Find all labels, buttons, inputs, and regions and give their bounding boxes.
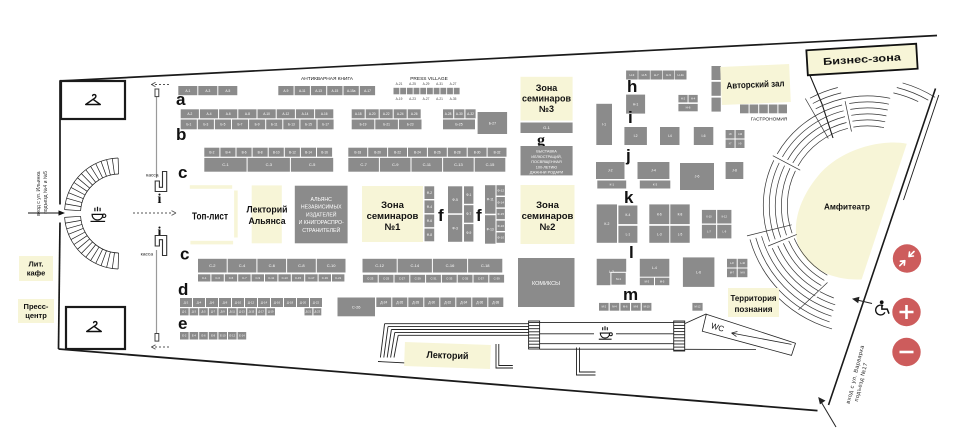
svg-text:Ф-14: Ф-14 — [497, 200, 504, 204]
svg-text:К-12: К-12 — [722, 215, 728, 219]
svg-text:L-3: L-3 — [657, 233, 662, 237]
svg-text:С-23: С-23 — [367, 277, 374, 281]
svg-text:В-20: В-20 — [374, 150, 381, 154]
svg-text:Н-6: Н-6 — [686, 106, 691, 110]
svg-text:L-9: L-9 — [722, 230, 726, 234]
svg-text:Д-26: Д-26 — [396, 300, 403, 304]
svg-text:касса: касса — [141, 253, 154, 258]
svg-text:L-6: L-6 — [696, 270, 701, 274]
svg-text:В-10: В-10 — [273, 150, 280, 154]
svg-text:Б-9: Б-9 — [255, 123, 260, 127]
svg-text:Е-12: Е-12 — [230, 334, 236, 338]
svg-text:Д-6: Д-6 — [210, 301, 215, 305]
svg-text:А-1: А-1 — [185, 89, 190, 93]
svg-text:М-6: М-6 — [623, 305, 628, 309]
svg-text:Б-7: Б-7 — [238, 123, 243, 127]
svg-text:В-32: В-32 — [494, 150, 501, 154]
svg-text:А-22: А-22 — [383, 112, 390, 116]
svg-text:К-6: К-6 — [657, 212, 662, 216]
svg-text:кафе: кафе — [27, 269, 46, 278]
svg-text:Д-8: Д-8 — [223, 301, 228, 305]
svg-text:А-13: А-13 — [315, 89, 322, 93]
svg-text:А-19: А-19 — [396, 97, 403, 101]
svg-text:С-12: С-12 — [375, 263, 384, 268]
svg-text:Н-5: Н-5 — [642, 73, 647, 77]
svg-text:С-7: С-7 — [242, 276, 247, 280]
svg-text:Д-14: Д-14 — [261, 301, 268, 305]
svg-text:А-24: А-24 — [397, 112, 404, 116]
svg-text:l: l — [629, 243, 634, 262]
svg-text:познания: познания — [735, 304, 773, 314]
svg-text:А-10: А-10 — [263, 112, 270, 116]
svg-text:Е-10: Е-10 — [220, 334, 226, 338]
svg-text:Альянса: Альянса — [249, 216, 287, 227]
svg-text:С-3: С-3 — [215, 276, 220, 280]
svg-text:С-17: С-17 — [308, 276, 315, 280]
svg-text:Лекторий: Лекторий — [426, 350, 468, 362]
svg-text:Ф-1: Ф-1 — [466, 193, 471, 197]
svg-text:h: h — [627, 77, 637, 96]
svg-text:В-4: В-4 — [226, 150, 231, 154]
svg-text:ИЗДАТЕЛЕЙ: ИЗДАТЕЛЕЙ — [306, 210, 337, 218]
svg-text:М-7: М-7 — [730, 272, 735, 275]
svg-text:М-5: М-5 — [660, 279, 665, 283]
svg-text:L-5: L-5 — [678, 233, 683, 237]
svg-text:С-33: С-33 — [446, 277, 453, 281]
svg-text:Д-20: Д-20 — [300, 301, 307, 305]
svg-text:Ф-8: Ф-8 — [427, 233, 432, 237]
svg-text:А-28: А-28 — [445, 112, 452, 116]
svg-text:М-12: М-12 — [695, 305, 701, 309]
svg-text:А-16: А-16 — [321, 112, 328, 116]
svg-text:С-2: С-2 — [209, 263, 216, 268]
svg-text:Е-4: Е-4 — [192, 334, 197, 338]
svg-text:И КНИГОРАСПРО-: И КНИГОРАСПРО- — [299, 220, 345, 226]
svg-text:С-19: С-19 — [322, 276, 329, 280]
svg-text:Ф-10: Ф-10 — [497, 236, 504, 240]
svg-text:Б-23: Б-23 — [407, 123, 414, 127]
svg-text:Б-13: Б-13 — [288, 123, 295, 127]
svg-text:М-1: М-1 — [616, 277, 621, 281]
svg-text:семинаров: семинаров — [522, 94, 572, 104]
svg-text:С-3: С-3 — [266, 162, 273, 167]
svg-text:Д-13: Д-13 — [239, 310, 245, 314]
svg-text:В-24: В-24 — [414, 150, 421, 154]
svg-text:М-9: М-9 — [741, 272, 746, 275]
svg-text:С-37: С-37 — [478, 277, 485, 281]
svg-text:С-15: С-15 — [295, 276, 302, 280]
svg-text:А-21: А-21 — [436, 97, 443, 101]
svg-text:С-27: С-27 — [399, 277, 406, 281]
svg-text:Е-2: Е-2 — [182, 334, 187, 338]
svg-text:С-4: С-4 — [239, 263, 246, 268]
svg-text:Е-14: Е-14 — [239, 334, 245, 338]
svg-text:А-32: А-32 — [467, 112, 474, 116]
svg-text:К-3: К-3 — [653, 183, 658, 187]
svg-text:a: a — [176, 90, 186, 109]
svg-text:i: i — [158, 192, 162, 207]
svg-text:ДЖАННИ РОДАРИ: ДЖАННИ РОДАРИ — [530, 171, 564, 175]
svg-text:С-35: С-35 — [462, 277, 469, 281]
svg-text:В-18: В-18 — [354, 150, 361, 154]
svg-text:Д-34: Д-34 — [460, 300, 467, 304]
svg-text:подъезд №4 и №5: подъезд №4 и №5 — [43, 171, 49, 214]
svg-text:Н-11: Н-11 — [678, 73, 685, 77]
svg-text:Д-12: Д-12 — [248, 301, 255, 305]
svg-text:С-1: С-1 — [222, 162, 229, 167]
svg-text:Ф-16: Ф-16 — [497, 224, 504, 228]
svg-text:Б-17: Б-17 — [322, 123, 329, 127]
svg-text:М-4: М-4 — [612, 305, 617, 309]
svg-text:КОМИКСЫ: КОМИКСЫ — [532, 281, 560, 287]
svg-text:Д-9: Д-9 — [221, 310, 226, 314]
svg-text:С-13: С-13 — [282, 276, 289, 280]
svg-text:i: i — [628, 108, 633, 127]
svg-text:Ф-6: Ф-6 — [427, 219, 432, 223]
svg-text:К-2: К-2 — [604, 222, 609, 226]
svg-text:С-7: С-7 — [360, 162, 367, 167]
svg-text:ИЛЛЮСТРАЦИЙ,: ИЛЛЮСТРАЦИЙ, — [531, 155, 562, 159]
svg-text:А-26: А-26 — [411, 112, 418, 116]
svg-text:А-14: А-14 — [302, 112, 309, 116]
svg-text:С-15: С-15 — [486, 162, 495, 167]
svg-text:Д-2: Д-2 — [184, 301, 189, 305]
svg-text:Пресс-: Пресс- — [24, 302, 49, 311]
svg-text:Д-5: Д-5 — [201, 310, 206, 314]
svg-text:К-10: К-10 — [706, 215, 712, 219]
svg-text:f: f — [476, 206, 482, 225]
svg-text:I-2: I-2 — [634, 134, 638, 138]
svg-text:Ф-5: Ф-5 — [452, 198, 458, 202]
svg-text:d: d — [178, 280, 188, 299]
svg-text:j: j — [625, 146, 631, 165]
svg-text:касса: касса — [146, 174, 159, 179]
svg-text:Н-7: Н-7 — [654, 73, 659, 77]
svg-text:В-12: В-12 — [289, 150, 296, 154]
svg-text:Д-22: Д-22 — [313, 301, 320, 305]
svg-text:Ф-2: Ф-2 — [427, 191, 432, 195]
svg-text:С-9: С-9 — [392, 162, 399, 167]
svg-text:С-31: С-31 — [430, 277, 437, 281]
svg-text:центр: центр — [25, 311, 47, 320]
svg-text:С-5: С-5 — [229, 276, 234, 280]
svg-text:G-1: G-1 — [543, 125, 550, 130]
svg-text:СТРАНИТЕЛЕЙ: СТРАНИТЕЛЕЙ — [302, 226, 340, 234]
svg-text:С-6: С-6 — [269, 263, 276, 268]
svg-text:Б-19: Б-19 — [360, 123, 367, 127]
svg-text:Ф-13: Ф-13 — [487, 228, 494, 232]
svg-text:I-6: I-6 — [702, 134, 706, 138]
svg-text:К-1: К-1 — [610, 183, 615, 187]
svg-text:А-25: А-25 — [409, 82, 416, 86]
svg-text:Д-21: Д-21 — [306, 310, 312, 314]
svg-text:Зона: Зона — [381, 200, 404, 211]
svg-text:С-5: С-5 — [309, 162, 316, 167]
svg-text:А-4: А-4 — [207, 112, 212, 116]
svg-text:e: e — [178, 314, 187, 333]
svg-text:Д-7: Д-7 — [211, 310, 216, 314]
svg-text:А-15а: А-15а — [347, 89, 356, 93]
svg-text:А-9: А-9 — [283, 89, 288, 93]
svg-text:Ф-15: Ф-15 — [497, 212, 504, 216]
svg-text:В-6: В-6 — [242, 150, 247, 154]
svg-text:Б-11: Б-11 — [271, 123, 278, 127]
svg-text:АНТИКВАРНАЯ КНИГА: АНТИКВАРНАЯ КНИГА — [301, 76, 354, 82]
svg-text:К-8: К-8 — [678, 212, 683, 216]
svg-text:А-27: А-27 — [423, 97, 430, 101]
svg-text:Ф-4: Ф-4 — [427, 205, 432, 209]
svg-text:Д-17: Д-17 — [258, 310, 264, 314]
svg-text:Зона: Зона — [536, 200, 559, 211]
svg-text:№3: №3 — [539, 104, 554, 114]
svg-text:А-15: А-15 — [332, 89, 339, 93]
svg-text:c: c — [180, 245, 189, 264]
svg-text:А-21: А-21 — [396, 82, 403, 86]
svg-text:№1: №1 — [385, 222, 402, 233]
svg-text:Ф-11: Ф-11 — [487, 198, 494, 202]
svg-text:С-11: С-11 — [268, 276, 274, 280]
svg-text:С-18: С-18 — [481, 263, 490, 268]
svg-text:Топ-лист: Топ-лист — [192, 211, 228, 223]
svg-text:Б-5: Б-5 — [220, 123, 225, 127]
svg-text:А-11: А-11 — [299, 89, 306, 93]
svg-text:Д-30: Д-30 — [428, 300, 435, 304]
svg-text:А-17: А-17 — [364, 89, 371, 93]
svg-text:Д-23: Д-23 — [315, 310, 321, 314]
svg-text:С-11: С-11 — [423, 162, 432, 167]
svg-text:А-2: А-2 — [187, 112, 192, 116]
svg-text:J-6: J-6 — [695, 175, 700, 179]
svg-text:семинаров: семинаров — [367, 211, 419, 222]
svg-text:Д-19: Д-19 — [268, 310, 274, 314]
svg-text:С-21: С-21 — [335, 276, 342, 280]
svg-text:М-8: М-8 — [634, 305, 639, 309]
svg-text:Ф-7: Ф-7 — [466, 212, 471, 216]
svg-text:Н-4: Н-4 — [691, 97, 696, 101]
svg-text:m: m — [623, 285, 638, 304]
svg-text:С-26: С-26 — [352, 304, 361, 309]
svg-text:А-6: А-6 — [226, 112, 231, 116]
svg-text:I-4: I-4 — [668, 134, 672, 138]
svg-text:Е-8: Е-8 — [211, 334, 216, 338]
svg-text:Д-4: Д-4 — [197, 301, 202, 305]
svg-text:Б-21: Б-21 — [383, 123, 390, 127]
svg-text:Б-15: Б-15 — [305, 123, 312, 127]
svg-text:В-16: В-16 — [321, 150, 328, 154]
svg-text:Б-3: Б-3 — [203, 123, 208, 127]
svg-text:ВЫСТАВКА: ВЫСТАВКА — [536, 150, 557, 154]
svg-text:АЛЬЯНС: АЛЬЯНС — [311, 197, 333, 203]
svg-text:К-4: К-4 — [626, 213, 631, 217]
svg-text:L-4: L-4 — [652, 266, 657, 270]
svg-text:М-10: М-10 — [644, 305, 650, 309]
svg-text:Н-2: Н-2 — [681, 97, 686, 101]
svg-text:А-12: А-12 — [282, 112, 289, 116]
svg-text:С-8: С-8 — [298, 263, 305, 268]
svg-text:В-8: В-8 — [258, 150, 263, 154]
svg-text:А-29: А-29 — [423, 82, 430, 86]
svg-text:L-10: L-10 — [740, 262, 745, 265]
svg-text:Д-38: Д-38 — [492, 300, 499, 304]
svg-text:М-2: М-2 — [602, 305, 607, 309]
svg-text:А-20: А-20 — [369, 112, 376, 116]
svg-text:Б-25: Б-25 — [455, 123, 462, 127]
svg-text:Д-16: Д-16 — [274, 301, 281, 305]
svg-text:А-18: А-18 — [355, 112, 362, 116]
svg-text:А-5: А-5 — [225, 89, 230, 93]
svg-text:Б-27: Б-27 — [489, 121, 496, 125]
svg-text:А-27: А-27 — [450, 82, 457, 86]
svg-text:вход с ул. Ильинка: вход с ул. Ильинка — [36, 171, 42, 216]
svg-text:Д-10: Д-10 — [235, 301, 242, 305]
svg-text:Зона: Зона — [536, 83, 559, 93]
svg-text:В-2: В-2 — [209, 150, 214, 154]
svg-text:Д-3: Д-3 — [192, 310, 197, 314]
svg-text:С-29: С-29 — [415, 277, 422, 281]
svg-text:А-8: А-8 — [245, 112, 250, 116]
svg-text:Лит.: Лит. — [29, 260, 44, 269]
svg-text:А-23: А-23 — [409, 97, 416, 101]
svg-text:А-3: А-3 — [205, 89, 210, 93]
svg-text:№2: №2 — [540, 222, 556, 233]
svg-text:С-16: С-16 — [446, 263, 455, 268]
svg-text:В-26: В-26 — [434, 150, 441, 154]
svg-text:Ф-12: Ф-12 — [497, 189, 504, 193]
svg-text:Д-15: Д-15 — [249, 310, 255, 314]
svg-text:Лекторий: Лекторий — [247, 205, 288, 216]
svg-text:Д-24: Д-24 — [380, 300, 387, 304]
svg-text:ГАСТРОНОМИЯ: ГАСТРОНОМИЯ — [751, 117, 788, 123]
svg-text:НЕЗАВИСИМЫХ: НЕЗАВИСИМЫХ — [301, 205, 342, 211]
svg-text:С-10: С-10 — [327, 263, 336, 268]
svg-text:Д-18: Д-18 — [287, 301, 294, 305]
svg-text:В-28: В-28 — [454, 150, 461, 154]
svg-text:В-22: В-22 — [394, 150, 401, 154]
svg-text:Ф-3: Ф-3 — [452, 227, 458, 231]
svg-text:Амфитеатр: Амфитеатр — [824, 202, 870, 212]
svg-text:Б-1: Б-1 — [186, 123, 191, 127]
svg-text:С-1: С-1 — [202, 276, 207, 280]
svg-text:Д-32: Д-32 — [444, 300, 451, 304]
svg-text:В-14: В-14 — [305, 150, 312, 154]
svg-text:Ф-9: Ф-9 — [466, 231, 471, 235]
svg-text:С-14: С-14 — [410, 263, 419, 268]
svg-text:М-3: М-3 — [645, 279, 650, 283]
svg-text:b: b — [176, 125, 186, 144]
svg-text:С-25: С-25 — [383, 277, 390, 281]
svg-text:L-7: L-7 — [707, 230, 711, 234]
svg-text:100-ЛЕТИЮ: 100-ЛЕТИЮ — [536, 165, 558, 169]
svg-text:А-30: А-30 — [456, 112, 463, 116]
svg-text:А-31: А-31 — [436, 82, 443, 86]
svg-text:А-35: А-35 — [450, 97, 457, 101]
svg-text:С-39: С-39 — [494, 277, 501, 281]
svg-text:J-8: J-8 — [732, 169, 737, 173]
svg-text:Д-36: Д-36 — [476, 300, 483, 304]
svg-text:L-1: L-1 — [626, 233, 631, 237]
svg-text:ПОСВЯЩЕННАЯ: ПОСВЯЩЕННАЯ — [531, 160, 562, 164]
svg-text:f: f — [438, 206, 444, 225]
svg-text:Территория: Территория — [731, 293, 777, 303]
svg-text:c: c — [178, 163, 187, 182]
svg-text:Д-11: Д-11 — [230, 310, 236, 314]
svg-text:J-2: J-2 — [608, 169, 613, 173]
svg-text:Е-6: Е-6 — [201, 334, 206, 338]
svg-text:С-9: С-9 — [256, 276, 261, 280]
svg-text:Н-9: Н-9 — [666, 73, 671, 77]
svg-text:I-10: I-10 — [738, 133, 743, 136]
svg-text:k: k — [624, 188, 634, 207]
svg-text:Н-1: Н-1 — [633, 102, 639, 106]
svg-text:С-13: С-13 — [454, 162, 463, 167]
svg-text:I-1: I-1 — [602, 123, 606, 127]
svg-text:Д-28: Д-28 — [412, 300, 419, 304]
svg-text:семинаров: семинаров — [522, 211, 574, 222]
svg-text:J-4: J-4 — [651, 169, 656, 173]
svg-text:В-30: В-30 — [474, 150, 481, 154]
